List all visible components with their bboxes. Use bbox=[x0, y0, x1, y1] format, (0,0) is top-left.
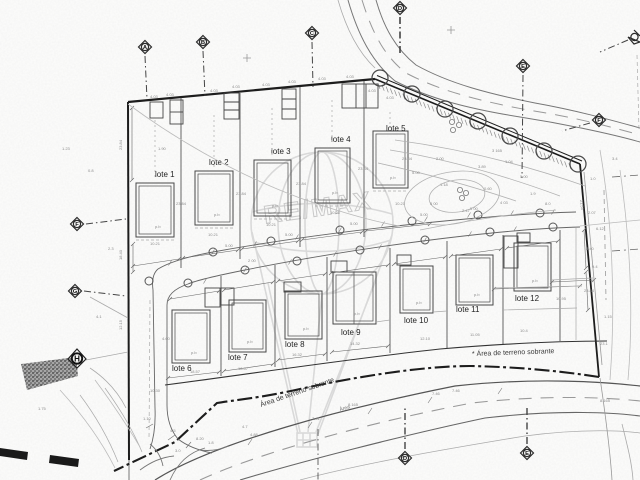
svg-text:10.21: 10.21 bbox=[150, 241, 161, 246]
svg-text:2.3: 2.3 bbox=[108, 246, 114, 251]
svg-text:lote 8: lote 8 bbox=[285, 340, 305, 349]
svg-text:4.03: 4.03 bbox=[210, 88, 219, 93]
svg-text:23.84: 23.84 bbox=[584, 288, 595, 293]
svg-text:5 00: 5 00 bbox=[430, 201, 439, 206]
svg-text:1.04: 1.04 bbox=[505, 159, 514, 164]
svg-text:lote 11: lote 11 bbox=[456, 305, 480, 314]
svg-text:18.40: 18.40 bbox=[118, 249, 123, 260]
svg-text:B: B bbox=[201, 40, 205, 46]
svg-text:5 00: 5 00 bbox=[520, 174, 529, 179]
svg-text:p.b: p.b bbox=[272, 203, 278, 208]
svg-text:3.89: 3.89 bbox=[478, 164, 487, 169]
svg-text:p.b: p.b bbox=[532, 278, 538, 283]
svg-text:3 165: 3 165 bbox=[492, 148, 503, 153]
svg-text:5.00: 5.00 bbox=[420, 212, 429, 217]
svg-text:p.b: p.b bbox=[191, 350, 197, 355]
svg-text:10.21: 10.21 bbox=[208, 232, 219, 237]
svg-text:9.4: 9.4 bbox=[592, 264, 598, 269]
svg-text:4.03: 4.03 bbox=[288, 79, 297, 84]
svg-text:F: F bbox=[75, 222, 79, 228]
svg-text:23.84: 23.84 bbox=[402, 156, 413, 161]
svg-text:p.b: p.b bbox=[474, 292, 480, 297]
svg-text:lote 10: lote 10 bbox=[404, 316, 429, 325]
svg-text:23.84: 23.84 bbox=[296, 181, 307, 186]
svg-text:lote 5: lote 5 bbox=[386, 124, 406, 133]
svg-text:6.12: 6.12 bbox=[596, 226, 605, 231]
svg-text:1.8: 1.8 bbox=[208, 440, 214, 445]
svg-text:7.41: 7.41 bbox=[312, 416, 321, 421]
svg-text:p.b: p.b bbox=[155, 224, 161, 229]
svg-text:5.00: 5.00 bbox=[412, 170, 421, 175]
svg-text:7.46: 7.46 bbox=[452, 388, 461, 393]
svg-text:4.03: 4.03 bbox=[232, 84, 241, 89]
svg-text:5.00: 5.00 bbox=[225, 243, 234, 248]
svg-text:4.1: 4.1 bbox=[96, 314, 102, 319]
svg-text:4.03: 4.03 bbox=[386, 95, 395, 100]
svg-text:23.84: 23.84 bbox=[358, 166, 369, 171]
svg-text:3.4: 3.4 bbox=[612, 156, 618, 161]
svg-text:10.95: 10.95 bbox=[556, 296, 567, 301]
svg-text:7.46: 7.46 bbox=[432, 391, 441, 396]
svg-text:18.57: 18.57 bbox=[238, 366, 249, 371]
svg-text:4.60: 4.60 bbox=[162, 336, 171, 341]
svg-text:D: D bbox=[398, 6, 402, 12]
svg-text:10.21: 10.21 bbox=[266, 222, 277, 227]
svg-text:12.15: 12.15 bbox=[118, 319, 123, 330]
svg-text:16.32: 16.32 bbox=[292, 352, 303, 357]
svg-text:H: H bbox=[74, 355, 80, 364]
svg-text:D: D bbox=[403, 456, 407, 462]
svg-text:p.b: p.b bbox=[332, 190, 338, 195]
svg-text:5.00: 5.00 bbox=[285, 232, 294, 237]
svg-text:G: G bbox=[73, 289, 78, 295]
svg-text:1.18: 1.18 bbox=[440, 182, 449, 187]
svg-text:4.03: 4.03 bbox=[346, 74, 355, 79]
svg-text:1.23: 1.23 bbox=[62, 146, 71, 151]
svg-text:4.03: 4.03 bbox=[166, 92, 175, 97]
svg-text:1.15: 1.15 bbox=[604, 314, 613, 319]
svg-text:3.0: 3.0 bbox=[175, 448, 181, 453]
svg-text:4.5: 4.5 bbox=[170, 428, 176, 433]
svg-text:1.10: 1.10 bbox=[143, 416, 152, 421]
svg-text:14.32: 14.32 bbox=[350, 341, 361, 346]
svg-text:4 03: 4 03 bbox=[500, 200, 509, 205]
svg-text:1.9: 1.9 bbox=[530, 191, 536, 196]
svg-text:2.47: 2.47 bbox=[462, 208, 471, 213]
svg-text:lote 3: lote 3 bbox=[271, 147, 291, 156]
svg-text:12.10: 12.10 bbox=[420, 336, 431, 341]
svg-text:4.03: 4.03 bbox=[262, 82, 271, 87]
svg-text:10.30: 10.30 bbox=[150, 388, 161, 393]
svg-text:23.84: 23.84 bbox=[236, 191, 247, 196]
svg-text:8.165: 8.165 bbox=[600, 398, 611, 403]
svg-text:1.75: 1.75 bbox=[38, 406, 47, 411]
svg-text:4.88: 4.88 bbox=[250, 432, 259, 437]
svg-text:23.84: 23.84 bbox=[176, 201, 187, 206]
svg-text:8.20: 8.20 bbox=[196, 436, 205, 441]
svg-text:8.0: 8.0 bbox=[545, 201, 551, 206]
svg-text:lote 1: lote 1 bbox=[155, 170, 175, 179]
svg-text:1.90: 1.90 bbox=[158, 146, 167, 151]
svg-text:lote 4: lote 4 bbox=[331, 135, 351, 144]
svg-text:lote 9: lote 9 bbox=[341, 328, 361, 337]
svg-text:4.03: 4.03 bbox=[150, 94, 159, 99]
svg-text:23.84: 23.84 bbox=[118, 139, 123, 150]
svg-text:0.60: 0.60 bbox=[484, 186, 493, 191]
svg-text:10.4: 10.4 bbox=[520, 328, 529, 333]
svg-text:5.00: 5.00 bbox=[350, 221, 359, 226]
svg-text:p.b: p.b bbox=[303, 326, 309, 331]
svg-text:F: F bbox=[597, 118, 601, 124]
svg-text:p.b: p.b bbox=[214, 212, 220, 217]
svg-text:E: E bbox=[525, 451, 529, 457]
svg-text:2.07: 2.07 bbox=[588, 210, 597, 215]
svg-text:11.05: 11.05 bbox=[470, 332, 480, 337]
svg-text:2 00: 2 00 bbox=[436, 156, 445, 161]
svg-text:0.8: 0.8 bbox=[88, 168, 94, 173]
svg-text:p.b: p.b bbox=[416, 300, 422, 305]
svg-text:4.03: 4.03 bbox=[318, 76, 327, 81]
svg-text:18.57: 18.57 bbox=[190, 369, 201, 374]
svg-text:lote 7: lote 7 bbox=[228, 353, 248, 362]
svg-text:4.03: 4.03 bbox=[368, 88, 377, 93]
svg-text:23.1: 23.1 bbox=[600, 341, 609, 346]
svg-text:1.0: 1.0 bbox=[590, 176, 596, 181]
svg-text:lote 12: lote 12 bbox=[515, 294, 540, 303]
svg-text:p.b: p.b bbox=[390, 175, 396, 180]
svg-text:p.b: p.b bbox=[247, 339, 253, 344]
svg-text:2 00: 2 00 bbox=[248, 258, 257, 263]
svg-text:8.40: 8.40 bbox=[586, 246, 595, 251]
svg-text:8.165: 8.165 bbox=[348, 402, 359, 407]
svg-text:4.7: 4.7 bbox=[242, 424, 248, 429]
svg-text:p.b: p.b bbox=[354, 311, 360, 316]
svg-text:E: E bbox=[521, 64, 525, 70]
